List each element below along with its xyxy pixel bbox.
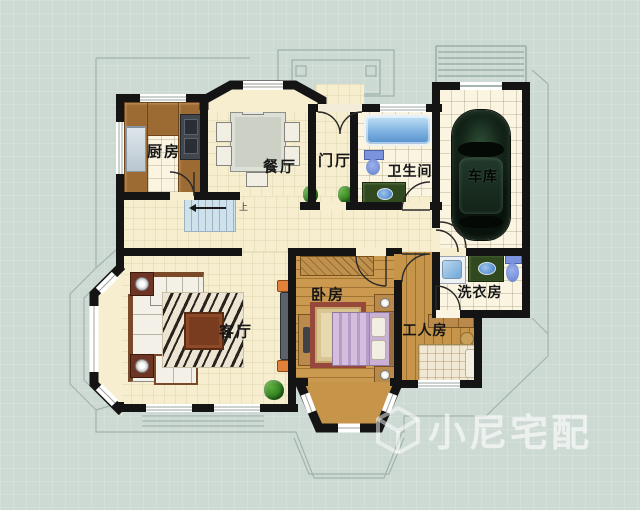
watermark-brand: 小尼宅配 xyxy=(428,402,592,457)
room-label-living: 客厅 xyxy=(219,321,253,342)
room-label-bedroom: 卧房 xyxy=(311,284,345,305)
stairs-up-label: 上 xyxy=(239,200,248,213)
floor-plan-canvas: 厨房 餐厅 门厅 卫生间 车库 洗衣房 客厅 卧房 工人房 上 小尼宅配 xyxy=(0,0,640,510)
room-label-dining: 餐厅 xyxy=(263,156,297,177)
room-label-foyer: 门厅 xyxy=(318,150,352,171)
room-label-kitchen: 厨房 xyxy=(147,141,181,162)
walls xyxy=(116,82,530,412)
room-label-laundry: 洗衣房 xyxy=(458,282,503,302)
watermark: 小尼宅配 xyxy=(376,402,592,457)
dining-bay xyxy=(204,81,322,112)
room-label-garage: 车库 xyxy=(468,166,498,186)
cube-logo-icon xyxy=(376,406,420,454)
room-label-bathroom: 卫生间 xyxy=(388,161,433,181)
room-label-workers-room: 工人房 xyxy=(403,320,448,340)
door-arcs xyxy=(170,112,466,310)
living-bay-window xyxy=(94,262,122,416)
